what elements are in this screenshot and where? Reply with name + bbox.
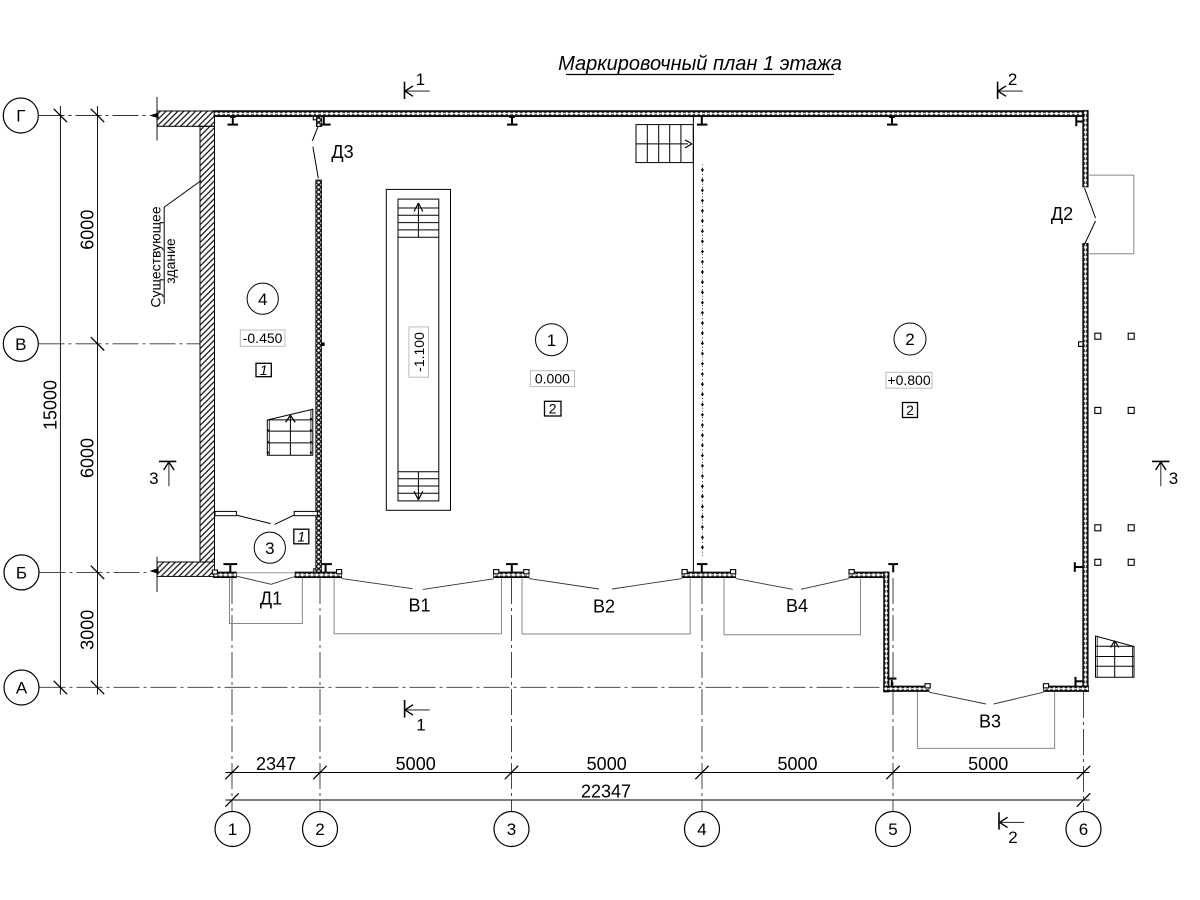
svg-text:2: 2 bbox=[905, 330, 914, 349]
svg-text:В: В bbox=[15, 335, 26, 354]
svg-text:3: 3 bbox=[507, 820, 516, 839]
svg-text:Маркировочный план 1 этажа: Маркировочный план 1 этажа bbox=[558, 53, 842, 75]
svg-text:22347: 22347 bbox=[581, 782, 631, 802]
svg-text:здание: здание bbox=[162, 238, 178, 284]
svg-text:3: 3 bbox=[1169, 469, 1178, 488]
svg-text:2347: 2347 bbox=[256, 754, 296, 774]
svg-text:5: 5 bbox=[888, 820, 897, 839]
svg-text:1: 1 bbox=[228, 820, 237, 839]
svg-text:1: 1 bbox=[416, 715, 425, 734]
svg-text:6: 6 bbox=[1079, 820, 1088, 839]
svg-text:+0.800: +0.800 bbox=[887, 372, 930, 388]
svg-text:0.000: 0.000 bbox=[535, 371, 570, 387]
svg-text:В4: В4 bbox=[786, 596, 808, 616]
svg-text:6000: 6000 bbox=[78, 438, 98, 478]
svg-text:-0.450: -0.450 bbox=[243, 330, 283, 346]
svg-text:6000: 6000 bbox=[78, 210, 98, 250]
svg-text:А: А bbox=[16, 679, 28, 698]
svg-text:Б: Б bbox=[16, 564, 27, 583]
svg-text:1: 1 bbox=[547, 331, 556, 350]
svg-text:15000: 15000 bbox=[41, 380, 61, 430]
svg-text:2: 2 bbox=[549, 401, 557, 417]
svg-text:3000: 3000 bbox=[78, 610, 98, 650]
svg-text:1: 1 bbox=[416, 70, 425, 89]
svg-text:5000: 5000 bbox=[396, 754, 436, 774]
svg-text:Д1: Д1 bbox=[260, 589, 282, 609]
svg-text:5000: 5000 bbox=[777, 754, 817, 774]
svg-text:4: 4 bbox=[258, 290, 267, 309]
svg-text:Д2: Д2 bbox=[1051, 204, 1073, 224]
svg-text:-1.100: -1.100 bbox=[411, 332, 427, 372]
svg-text:2: 2 bbox=[1008, 70, 1017, 89]
svg-text:В2: В2 bbox=[593, 597, 615, 617]
svg-text:Г: Г bbox=[16, 107, 25, 126]
svg-text:В1: В1 bbox=[408, 596, 430, 616]
svg-text:2: 2 bbox=[1008, 828, 1017, 847]
svg-text:5000: 5000 bbox=[968, 754, 1008, 774]
svg-text:2: 2 bbox=[906, 402, 914, 418]
svg-text:4: 4 bbox=[697, 820, 706, 839]
svg-text:1: 1 bbox=[260, 362, 268, 378]
svg-text:2: 2 bbox=[315, 820, 324, 839]
svg-text:1: 1 bbox=[297, 528, 305, 544]
svg-text:5000: 5000 bbox=[587, 754, 627, 774]
svg-text:Д3: Д3 bbox=[331, 142, 353, 162]
svg-text:3: 3 bbox=[149, 469, 158, 488]
svg-text:3: 3 bbox=[265, 539, 274, 558]
svg-text:В3: В3 bbox=[979, 712, 1001, 732]
